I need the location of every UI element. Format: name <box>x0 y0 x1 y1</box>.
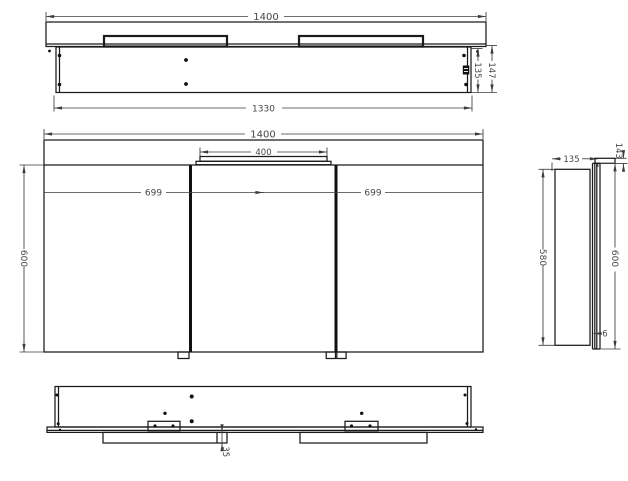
bottom-tab-left <box>178 352 189 359</box>
dim-bottom-bracket-depth: 35 <box>220 446 230 457</box>
dim-top-total-depth: 147 <box>486 62 496 78</box>
front-cabinet-outline <box>44 140 483 352</box>
dim-front-left-door-width: 699 <box>145 189 162 199</box>
dim-side-depth: 135 <box>563 155 579 165</box>
mounting-rail-left <box>104 36 227 47</box>
dim-front-right-door-width: 699 <box>364 189 381 199</box>
dim-front-overall-width: 1400 <box>250 129 275 140</box>
bottom-view: 35 <box>47 387 483 458</box>
screw-holes-bottom <box>55 394 477 431</box>
bottom-view-carcass <box>55 387 471 428</box>
dim-top-carcass-width: 1330 <box>252 104 275 114</box>
dim-side-door-height: 600 <box>609 250 619 267</box>
hinge-plate-right <box>345 421 378 430</box>
technical-drawing: 1400 1330 <box>0 0 628 481</box>
front-plate-strip <box>47 427 483 432</box>
bottom-tab-mid-left <box>326 352 335 359</box>
dim-top-carcass-depth: 135 <box>472 62 482 78</box>
screw-holes-top <box>48 50 479 87</box>
top-view: 1400 1330 <box>46 12 497 115</box>
side-view: 135 580 143 600 6 <box>537 143 628 349</box>
bottom-rail-right <box>300 432 427 443</box>
bottom-rail-left <box>103 432 227 443</box>
light-fixture-base <box>196 161 331 164</box>
bottom-tab-mid-right <box>337 352 346 359</box>
front-view: 1400 400 699 699 600 <box>18 129 483 359</box>
mounting-rail-right <box>299 36 423 47</box>
dim-side-carcass-height: 580 <box>537 249 547 266</box>
dim-side-door-thickness: 6 <box>602 330 607 340</box>
dim-side-top-depth: 143 <box>613 143 623 159</box>
dim-front-door-height: 600 <box>18 250 28 267</box>
power-socket <box>463 66 470 75</box>
mirror-door-profile <box>593 163 601 349</box>
side-carcass <box>555 169 590 345</box>
top-view-carcass <box>56 47 471 93</box>
technical-drawing-page: 1400 1330 <box>0 0 628 481</box>
dim-top-overall-width: 1400 <box>253 12 278 23</box>
top-plate <box>46 22 486 47</box>
hinge-plate-left <box>148 421 180 430</box>
